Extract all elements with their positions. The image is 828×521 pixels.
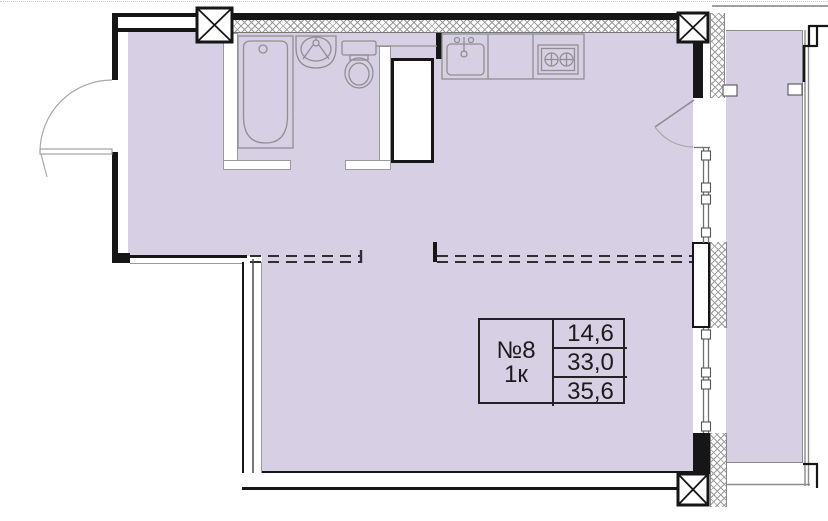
bathroom-wall-bottom-left: [223, 160, 291, 170]
apartment-number: №8: [496, 339, 535, 363]
exterior-notch-bottom-right: [803, 463, 818, 488]
upper-neighbor-line: [712, 5, 828, 7]
window-lower: [702, 328, 711, 433]
area-value-living: 14,6: [554, 320, 627, 349]
ventilation-shaft: [391, 58, 434, 163]
left-wall-lower: [112, 152, 118, 256]
top-wall: [232, 13, 678, 20]
lower-room-left-wall: [242, 262, 262, 473]
right-pier-middle: [692, 242, 710, 328]
right-pier-top: [693, 42, 703, 98]
right-pier-bottom: [693, 433, 710, 474]
right-hatch-bottom: [710, 433, 727, 507]
floor-plan: №8 1к 14,6 33,0 35,6: [0, 0, 828, 521]
window-upper: [694, 147, 711, 243]
room-count: 1к: [504, 363, 528, 387]
left-wall-upper: [112, 13, 118, 80]
area-table: №8 1к 14,6 33,0 35,6: [478, 318, 625, 404]
kitchen-side-wall: [436, 33, 442, 59]
area-value-main: 33,0: [554, 349, 627, 378]
bathroom-wall-left: [223, 33, 238, 170]
top-dotted-guide: [0, 1, 828, 2]
balcony: [726, 30, 803, 463]
entry-door: [40, 80, 112, 177]
wall-pier-xbox-bottom-right: [678, 474, 708, 505]
area-value-total: 35,6: [554, 378, 627, 406]
bottom-wall-outer-line: [242, 487, 678, 490]
lower-partition-solid: [130, 255, 247, 264]
apartment-cell: №8 1к: [480, 320, 554, 406]
bathroom-wall-right: [379, 46, 391, 170]
top-wall-hatch: [232, 20, 678, 33]
right-hatch-top: [710, 13, 725, 98]
bathroom-wall-bottom-right: [345, 160, 391, 170]
right-hatch-middle: [710, 242, 727, 328]
top-left-wall-line-b: [117, 28, 197, 32]
exterior-notch-top-right: [803, 25, 828, 82]
top-left-wall-line-a: [117, 13, 197, 17]
left-wall-corner: [112, 253, 130, 263]
